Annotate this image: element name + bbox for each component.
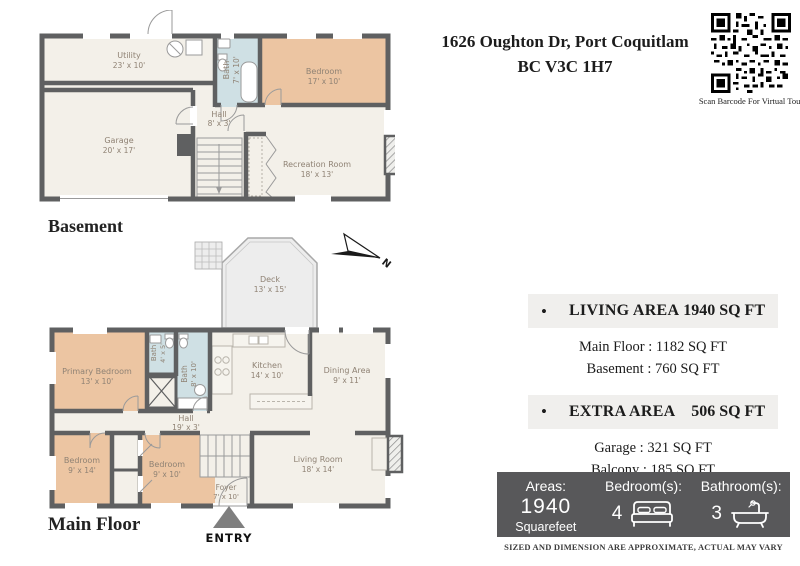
room-dims: 4' x 5' — [159, 343, 167, 363]
room-dims: 7' x 10' — [232, 56, 241, 84]
room-name: Dining Area — [324, 366, 371, 375]
room-dims: 9' x 14' — [68, 466, 96, 475]
extra-area-row: • EXTRA AREA 506 SQ FT — [528, 395, 778, 429]
room-dims: 13' x 10' — [81, 377, 113, 386]
address-line1: 1626 Oughton Dr, Port Coquitlam — [415, 30, 715, 55]
room-name: Primary Bedroom — [62, 367, 132, 376]
room-dims: 7' x 10' — [213, 493, 239, 501]
entry-label: ENTRY — [206, 531, 253, 545]
extra-area-value: 506 SQ FT — [691, 403, 765, 421]
room-name: Living Room — [293, 455, 342, 464]
basement-floorplan: Utility 23' x 10' Bath 7' x 10' Bedroom … — [35, 10, 395, 238]
deck — [195, 238, 317, 328]
areas-value: 1940 — [497, 495, 595, 519]
room-name: Utility — [117, 51, 141, 60]
deck-stairs — [195, 242, 222, 269]
room-name: Bath — [150, 345, 158, 361]
main-stairs — [200, 435, 250, 477]
basement-stairs — [197, 138, 242, 199]
basement-fireplace — [385, 136, 395, 174]
living-detail-basement: Basement : 760 SQ FT — [528, 358, 778, 380]
living-area-details: Main Floor : 1182 SQ FT Basement : 760 S… — [528, 336, 778, 381]
north-arrow-icon: N — [331, 234, 393, 271]
main-fireplace — [372, 436, 402, 472]
bullet-icon: • — [541, 303, 547, 320]
room-name: Hall — [211, 110, 226, 119]
room-name: Bedroom — [64, 456, 100, 465]
living-area-row: • LIVING AREA 1940 SQ FT — [528, 294, 778, 328]
room-name: Foyer — [216, 483, 238, 492]
sink-icon — [150, 335, 161, 343]
qr-code-image — [711, 13, 791, 93]
areas-label: Areas: — [497, 478, 595, 494]
qr-caption: Scan Barcode For Virtual Tour — [695, 96, 800, 107]
bathtub-icon — [729, 499, 771, 529]
stove-icon — [215, 357, 221, 363]
extra-detail-garage: Garage : 321 SQ FT — [528, 437, 778, 459]
compass-label: N — [379, 257, 392, 271]
stats-bathrooms: Bathroom(s): 3 — [692, 472, 790, 537]
room-dims: 18' x 14' — [302, 465, 334, 474]
room-name: Garage — [104, 136, 133, 145]
room-dims: 8' x 10' — [190, 361, 198, 387]
qr-code — [711, 13, 791, 93]
room-dims: 9' x 11' — [333, 376, 361, 385]
room-name: Bedroom — [306, 67, 342, 76]
room-name: Bath — [222, 61, 231, 80]
room-dims: 19' x 3' — [172, 423, 200, 432]
address-line2: BC V3C 1H7 — [415, 55, 715, 80]
room-name: Bedroom — [149, 460, 185, 469]
room-dims: 14' x 10' — [251, 371, 283, 380]
stats-areas: Areas: 1940 Squarefeet — [497, 472, 595, 537]
room-name: Recreation Room — [283, 160, 351, 169]
room-dims: 9' x 10' — [153, 470, 181, 479]
bedrooms-value: 4 — [612, 503, 623, 525]
living-area-label: LIVING AREA — [569, 302, 679, 320]
stats-bedrooms: Bedroom(s): 4 — [595, 472, 693, 537]
room-dims: 18' x 13' — [301, 170, 333, 179]
sink-icon — [249, 336, 258, 344]
bullet-icon: • — [541, 403, 547, 420]
bathrooms-label: Bathroom(s): — [692, 478, 790, 494]
room-dims: 20' x 17' — [103, 146, 135, 155]
area-summary-panel: • LIVING AREA 1940 SQ FT Main Floor : 11… — [528, 294, 778, 482]
stats-bar: Areas: 1940 Squarefeet Bedroom(s): 4 Bat… — [497, 472, 790, 537]
room-name: Kitchen — [252, 361, 282, 370]
room-name: Bath — [180, 365, 189, 383]
property-address: 1626 Oughton Dr, Port Coquitlam BC V3C 1… — [415, 30, 715, 79]
bathtub-icon — [241, 62, 257, 102]
bed-icon — [629, 499, 675, 529]
areas-unit: Squarefeet — [497, 520, 595, 534]
basement-wall-chimney — [177, 134, 195, 156]
room-dims: 17' x 10' — [308, 77, 340, 86]
extra-area-label: EXTRA AREA — [569, 403, 676, 421]
water-heater-icon — [186, 40, 202, 55]
floorplan-flyer: Utility 23' x 10' Bath 7' x 10' Bedroom … — [0, 0, 800, 566]
living-area-value: 1940 SQ FT — [683, 302, 765, 320]
room-name: Deck — [260, 275, 280, 284]
main-floor-title: Main Floor — [48, 514, 140, 536]
bedrooms-label: Bedroom(s): — [595, 478, 693, 494]
sink-icon — [218, 39, 230, 48]
room-dims: 13' x 15' — [254, 285, 286, 294]
disclaimer-text: SIZED AND DIMENSION ARE APPROXIMATE, ACT… — [497, 542, 790, 552]
main-floorplan: N ENTRY Deck 13' x 15' Primary Bedroom 1… — [45, 226, 405, 548]
room-name: Hall — [178, 414, 193, 423]
living-detail-main-floor: Main Floor : 1182 SQ FT — [528, 336, 778, 358]
bathrooms-value: 3 — [711, 503, 722, 525]
room-dims: 8' x 3' — [208, 119, 231, 128]
room-dims: 23' x 10' — [113, 61, 145, 70]
